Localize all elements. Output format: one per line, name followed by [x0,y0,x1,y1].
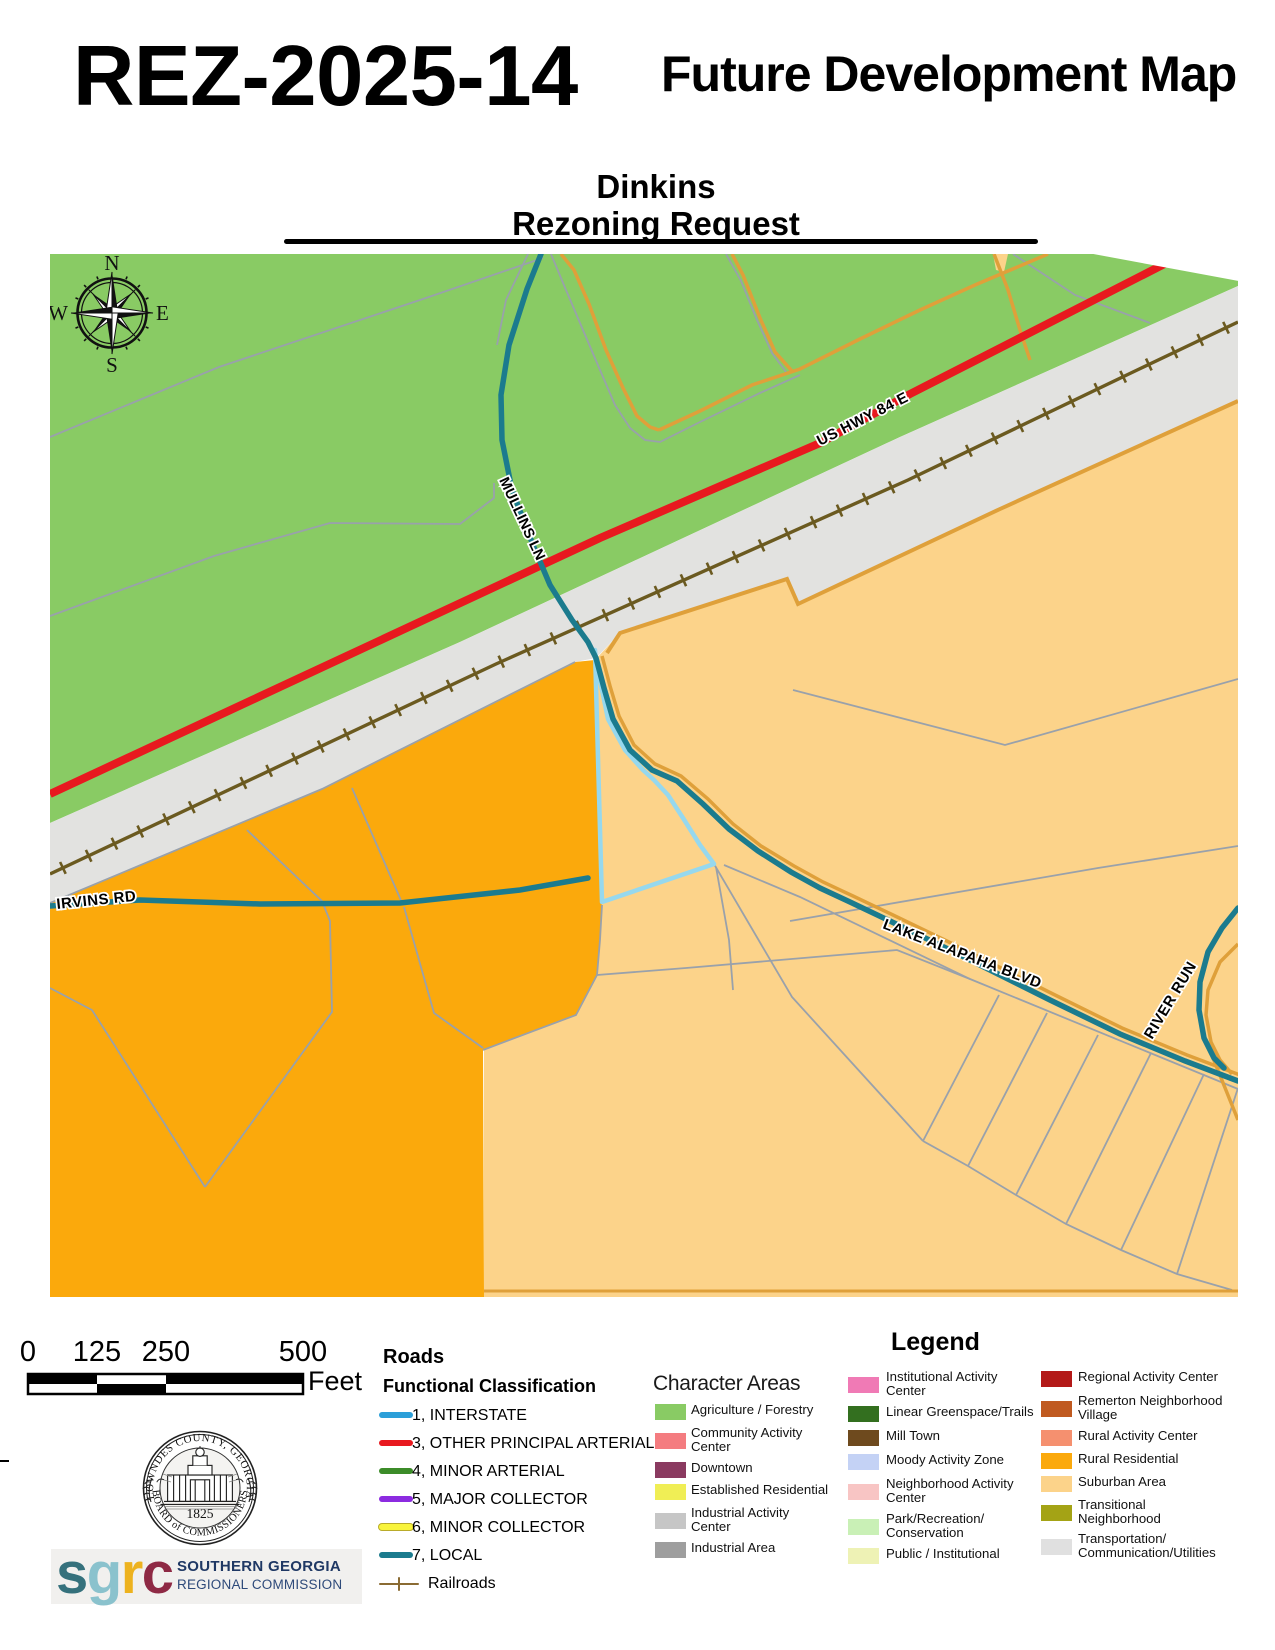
svg-text:S: S [106,353,118,377]
svg-text:W: W [50,301,68,325]
svg-text:1825: 1825 [187,1506,214,1521]
svg-text:N: N [104,254,119,275]
svg-text:E: E [156,301,169,325]
